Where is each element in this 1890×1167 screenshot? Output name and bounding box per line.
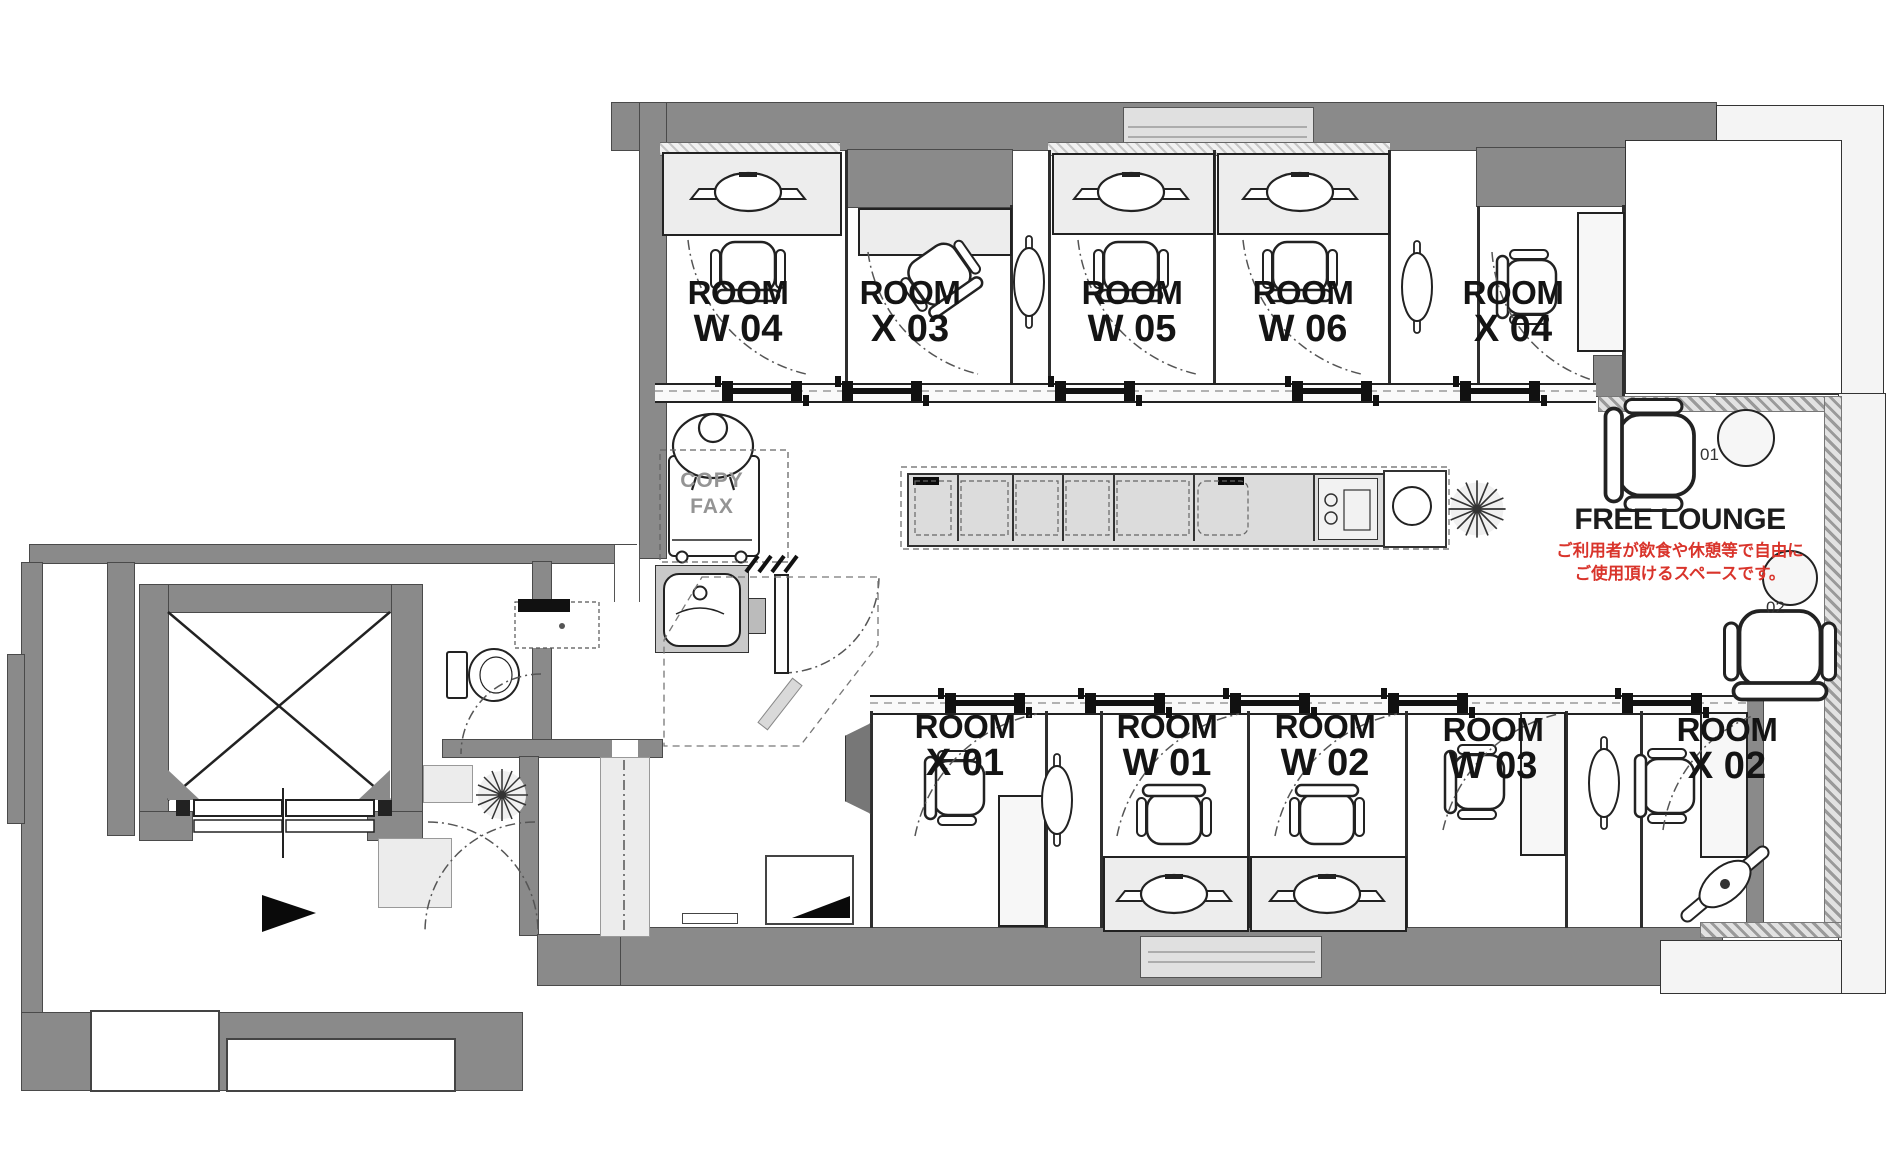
room-label-x01: ROOM X 01 [880, 710, 1050, 784]
wall [22, 563, 42, 1013]
counter-divider [1113, 475, 1115, 541]
room-label-x02: ROOM X 02 [1642, 713, 1812, 787]
room-label-x04: ROOM X 04 [1428, 276, 1598, 350]
elevator-wall [140, 585, 420, 612]
room-label-x03: ROOM X 03 [825, 276, 995, 350]
room-label-line1: ROOM [1642, 713, 1812, 747]
room-label-w03: ROOM W 03 [1408, 713, 1578, 787]
free-lounge-note-line1: ご利用者が飲食や休憩等で自由に [1538, 540, 1822, 563]
counter-divider [1062, 475, 1064, 541]
desk [998, 795, 1046, 927]
room-label-line1: ROOM [1408, 713, 1578, 747]
room-label-w02: ROOM W 02 [1240, 710, 1410, 784]
room-label-line1: ROOM [1218, 276, 1388, 310]
wall [8, 655, 24, 823]
free-lounge-title: FREE LOUNGE [1545, 503, 1815, 537]
free-lounge-note-line2: ご使用頂けるスペースです。 [1538, 563, 1822, 586]
copy-fax-label: COPY FAX [668, 468, 756, 521]
low-cabinet [765, 855, 854, 925]
room-label-line2: X 04 [1428, 310, 1598, 350]
door-leaf-icon [775, 575, 788, 673]
cooktop [1318, 478, 1378, 540]
elevator-wall [140, 585, 168, 840]
counter-handle [913, 477, 939, 485]
free-lounge-note: ご利用者が飲食や休憩等で自由に ご使用頂けるスペースです。 [1538, 540, 1822, 587]
elevator [168, 612, 392, 858]
elevator-wall [392, 585, 422, 840]
seat-number-02: 02 [1766, 598, 1785, 618]
shelf [423, 765, 473, 803]
desk [1052, 153, 1215, 235]
wall-monitor [845, 723, 871, 814]
sink-basin [663, 573, 741, 647]
room-label-line2: W 05 [1047, 310, 1217, 350]
room-label-line2: X 02 [1642, 747, 1812, 787]
partition-band-top [655, 383, 1596, 403]
room-label-line2: W 01 [1082, 744, 1252, 784]
shelf [682, 913, 738, 924]
room-label-line2: W 04 [653, 310, 823, 350]
elevator-wall [140, 812, 192, 840]
room-label-w04: ROOM W 04 [653, 276, 823, 350]
room-label-w01: ROOM W 01 [1082, 710, 1252, 784]
counter-divider [1193, 475, 1195, 541]
terrace-room [1625, 140, 1842, 394]
wall [520, 757, 538, 935]
glass-wall [1700, 922, 1842, 938]
wall [533, 562, 551, 754]
counter-handle [1218, 477, 1244, 485]
storage-room [226, 1038, 456, 1092]
copy-label-line2: FAX [668, 494, 756, 520]
desk [1250, 856, 1407, 932]
desk [858, 208, 1012, 256]
room-label-line1: ROOM [825, 276, 995, 310]
desk [662, 152, 842, 236]
room-label-line1: ROOM [1428, 276, 1598, 310]
elevator-wall [368, 812, 422, 840]
wall [108, 563, 134, 835]
wall [30, 545, 636, 563]
room-label-w06: ROOM W 06 [1218, 276, 1388, 350]
seat-number-01: 01 [1700, 445, 1719, 465]
floor-plan: ROOM W 04 ROOM X 03 ROOM W 05 ROOM W 06 … [0, 0, 1890, 1167]
balcony [1838, 393, 1886, 994]
door-gap [612, 740, 638, 757]
sink-cabinet [1383, 470, 1447, 548]
desk [1103, 856, 1249, 932]
wall [1594, 356, 1624, 396]
hatch-marks [746, 556, 797, 572]
room-label-line2: W 06 [1218, 310, 1388, 350]
corridor [600, 757, 650, 937]
round-table-icon [1718, 410, 1774, 466]
wall [848, 150, 1012, 207]
room-label-line2: X 03 [825, 310, 995, 350]
copy-label-line1: COPY [668, 468, 756, 494]
counter-divider [1012, 475, 1014, 541]
counter-divider [957, 475, 959, 541]
door-panel [1140, 936, 1322, 978]
cabinet [378, 838, 452, 908]
counter-divider [1313, 475, 1315, 541]
room-label-line1: ROOM [1047, 276, 1217, 310]
room-label-line2: W 03 [1408, 747, 1578, 787]
toilet-icon [447, 649, 519, 701]
room-label-line1: ROOM [1082, 710, 1252, 744]
room-label-line1: ROOM [880, 710, 1050, 744]
vanity-icon [515, 599, 599, 648]
angled-wall [758, 678, 802, 730]
room-label-line1: ROOM [653, 276, 823, 310]
balcony [1660, 940, 1842, 994]
room-label-line2: X 01 [880, 744, 1050, 784]
room-label-w05: ROOM W 05 [1047, 276, 1217, 350]
shaft [614, 545, 640, 602]
room-label-line1: ROOM [1240, 710, 1410, 744]
water-heater [748, 598, 766, 634]
wall [538, 935, 620, 985]
entrance-arrow-icon [262, 895, 316, 932]
room-label-line2: W 02 [1240, 744, 1410, 784]
glass-wall [1824, 396, 1842, 938]
storage-room [90, 1010, 220, 1092]
glass-wall [1598, 396, 1840, 412]
desk [1217, 153, 1390, 235]
